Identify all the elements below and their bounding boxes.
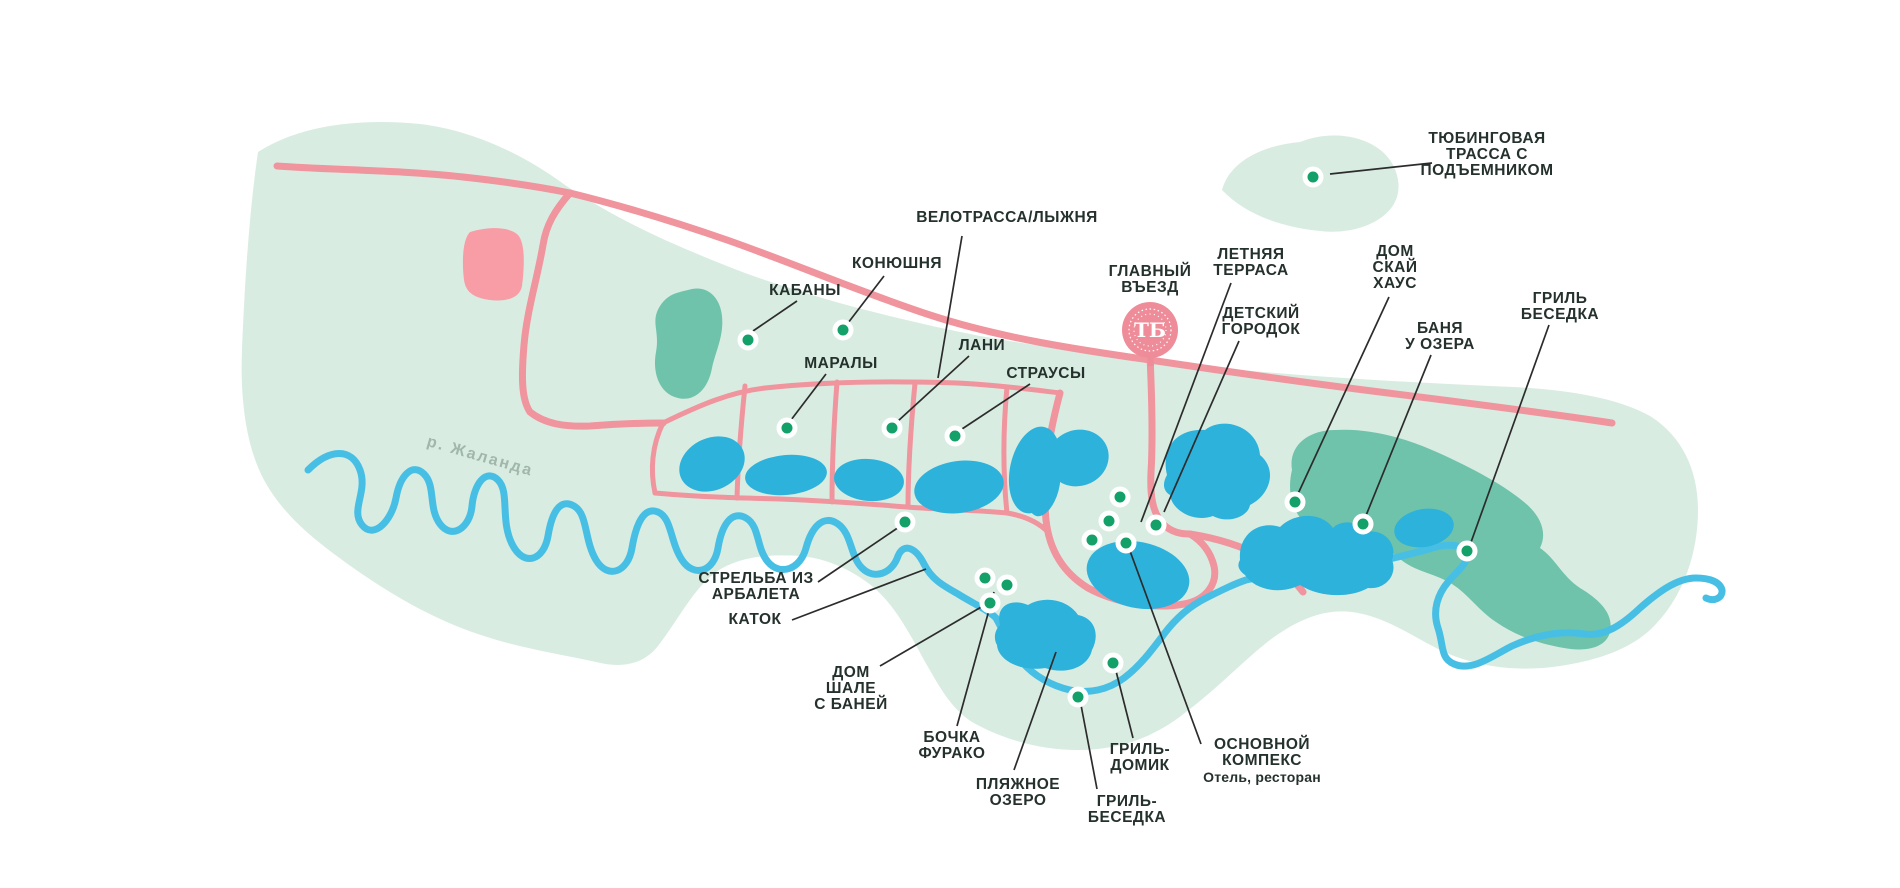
- label-konyushnya: КОНЮШНЯ: [852, 256, 942, 272]
- label-line: ВЪЕЗД: [1109, 280, 1192, 296]
- label-line: ТРАССА С: [1420, 147, 1553, 163]
- label-line: ШАЛЕ: [814, 681, 887, 697]
- label-line: МАРАЛЫ: [804, 356, 878, 372]
- label-strausy: СТРАУСЫ: [1006, 366, 1085, 382]
- label-letnyaya-terrasa: ЛЕТНЯЯ ТЕРРАСА: [1213, 247, 1288, 279]
- label-line: ДЕТСКИЙ: [1222, 306, 1301, 322]
- marker-strausy[interactable]: [947, 428, 963, 444]
- label-line: С БАНЕЙ: [814, 697, 887, 713]
- label-line: БЕСЕДКА: [1521, 307, 1599, 323]
- label-line: СКАЙ: [1373, 260, 1418, 276]
- entrance-monogram: ТБ: [1134, 318, 1166, 342]
- label-line: ПОДЪЕМНИКОМ: [1420, 163, 1553, 179]
- label-line: КОНЮШНЯ: [852, 256, 942, 272]
- label-line: У ОЗЕРА: [1405, 337, 1475, 353]
- label-line: ХАУС: [1373, 276, 1418, 292]
- label-kabany: КАБАНЫ: [769, 283, 841, 299]
- resort-map: ТБ: [0, 0, 1900, 888]
- label-line: СТРЕЛЬБА ИЗ: [698, 571, 813, 587]
- label-dom-sky-house: ДОМ СКАЙ ХАУС: [1373, 244, 1418, 292]
- label-lani: ЛАНИ: [959, 338, 1005, 354]
- label-velotrassa: ВЕЛОТРАССА/ЛЫЖНЯ: [916, 210, 1098, 226]
- label-gril-besedka-east: ГРИЛЬ БЕСЕДКА: [1521, 291, 1599, 323]
- marker-complex-3[interactable]: [1084, 532, 1100, 548]
- label-line: ГРИЛЬ-: [1088, 794, 1166, 810]
- marker-gril-domik[interactable]: [1105, 655, 1121, 671]
- marker-bochka-1[interactable]: [977, 570, 993, 586]
- label-line: ДОМ: [1373, 244, 1418, 260]
- label-osnovnoy-kompeks: ОСНОВНОЙ КОМПЕКС Отель, ресторан: [1203, 737, 1321, 785]
- marker-dom-sky-house[interactable]: [1287, 494, 1303, 510]
- label-line: БОЧКА: [919, 730, 986, 746]
- marker-strelba[interactable]: [897, 514, 913, 530]
- label-line: ТЕРРАСА: [1213, 263, 1288, 279]
- label-plyazhnoe-ozero: ПЛЯЖНОЕ ОЗЕРО: [976, 777, 1060, 809]
- label-line: ВЕЛОТРАССА/ЛЫЖНЯ: [916, 210, 1098, 226]
- label-glavny-vezd: ГЛАВНЫЙ ВЪЕЗД: [1109, 264, 1192, 296]
- marker-gril-besedka-east[interactable]: [1459, 543, 1475, 559]
- marker-konyushnya[interactable]: [835, 322, 851, 338]
- label-line: КАТОК: [729, 612, 782, 628]
- label-maraly: МАРАЛЫ: [804, 356, 878, 372]
- label-line: ЛАНИ: [959, 338, 1005, 354]
- label-line: КАБАНЫ: [769, 283, 841, 299]
- label-line: ГРИЛЬ-: [1110, 742, 1170, 758]
- marker-kabany[interactable]: [740, 332, 756, 348]
- label-line: ДОМ: [814, 665, 887, 681]
- building-square: [463, 228, 524, 300]
- label-line: ЛЕТНЯЯ: [1213, 247, 1288, 263]
- marker-lani[interactable]: [884, 420, 900, 436]
- marker-complex-4[interactable]: [1118, 535, 1134, 551]
- marker-bochka-2[interactable]: [999, 577, 1015, 593]
- label-line: ГОРОДОК: [1222, 322, 1301, 338]
- label-strelba: СТРЕЛЬБА ИЗ АРБАЛЕТА: [698, 571, 813, 603]
- label-gril-domik: ГРИЛЬ- ДОМИК: [1110, 742, 1170, 774]
- marker-complex-2[interactable]: [1101, 513, 1117, 529]
- label-bochka-furako: БОЧКА ФУРАКО: [919, 730, 986, 762]
- label-line: БЕСЕДКА: [1088, 810, 1166, 826]
- label-line: ОСНОВНОЙ: [1203, 737, 1321, 753]
- label-line: КОМПЕКС: [1203, 753, 1321, 769]
- marker-maraly[interactable]: [779, 420, 795, 436]
- marker-letnyaya-terrasa[interactable]: [1148, 517, 1164, 533]
- label-tubing: ТЮБИНГОВАЯ ТРАССА С ПОДЪЕМНИКОМ: [1420, 131, 1553, 179]
- marker-gril-besedka-south[interactable]: [1070, 689, 1086, 705]
- label-line: ДОМИК: [1110, 758, 1170, 774]
- label-line: АРБАЛЕТА: [698, 587, 813, 603]
- label-line: ГРИЛЬ: [1521, 291, 1599, 307]
- marker-banya-u-ozera[interactable]: [1355, 516, 1371, 532]
- label-detsky-gorodok: ДЕТСКИЙ ГОРОДОК: [1222, 306, 1301, 338]
- label-line: ОЗЕРО: [976, 793, 1060, 809]
- label-subline: Отель, ресторан: [1203, 769, 1321, 785]
- marker-dom-shale[interactable]: [982, 595, 998, 611]
- label-gril-besedka-south: ГРИЛЬ- БЕСЕДКА: [1088, 794, 1166, 826]
- label-katok: КАТОК: [729, 612, 782, 628]
- label-line: ПЛЯЖНОЕ: [976, 777, 1060, 793]
- label-line: ФУРАКО: [919, 746, 986, 762]
- label-line: ГЛАВНЫЙ: [1109, 264, 1192, 280]
- label-line: ТЮБИНГОВАЯ: [1420, 131, 1553, 147]
- label-line: БАНЯ: [1405, 321, 1475, 337]
- label-banya-u-ozera: БАНЯ У ОЗЕРА: [1405, 321, 1475, 353]
- marker-complex-1[interactable]: [1112, 489, 1128, 505]
- label-dom-shale: ДОМ ШАЛЕ С БАНЕЙ: [814, 665, 887, 713]
- marker-tubing-hill[interactable]: [1305, 169, 1321, 185]
- label-line: СТРАУСЫ: [1006, 366, 1085, 382]
